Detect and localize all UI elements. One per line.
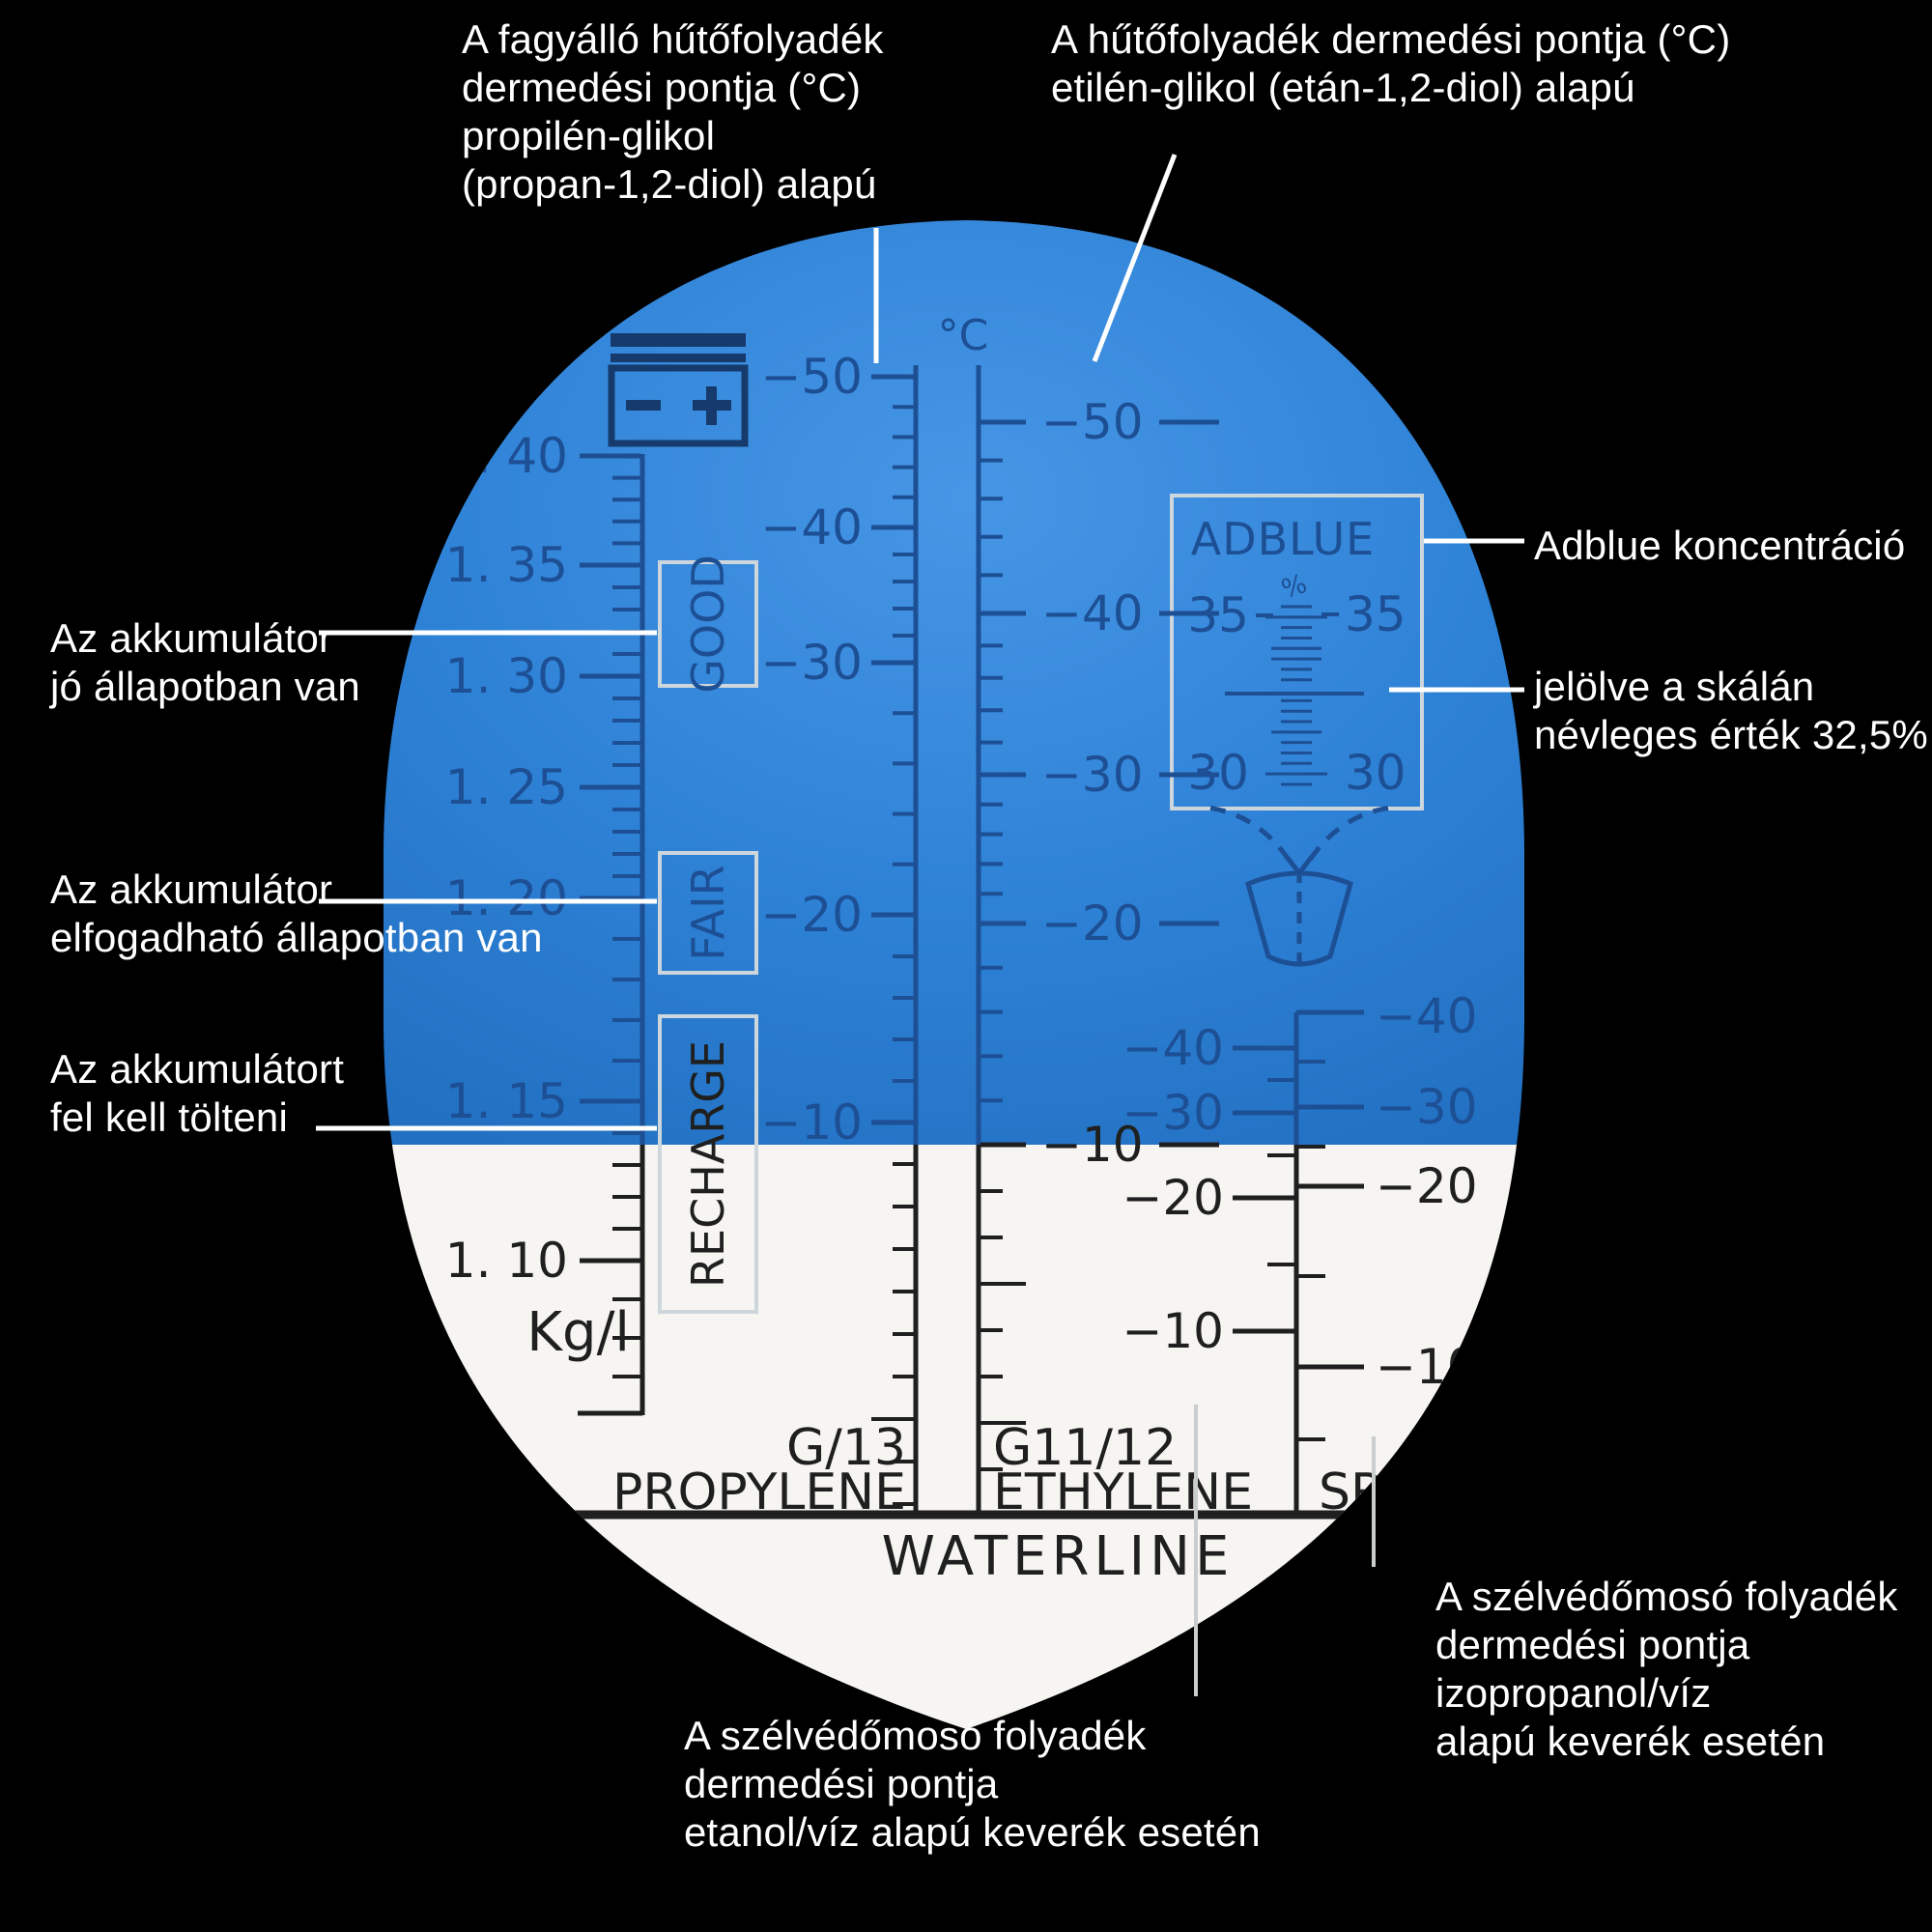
annotation-line: jó állapotban van: [50, 663, 360, 711]
propylene-scale-label: −40: [760, 499, 863, 555]
propylene-scale-label: −50: [760, 349, 863, 405]
annotation-adblue-concentration: Adblue koncentráció: [1534, 522, 1905, 570]
battery-status-label-fair: FAIR: [682, 865, 734, 960]
battery-terminal-bar2: [611, 354, 746, 362]
annotation-line: etanol/víz alapú keverék esetén: [684, 1808, 1261, 1857]
annotation-battery-recharge: Az akkumulátortfel kell tölteni: [50, 1045, 344, 1142]
annotation-ethylene-freezing-point: A hűtőfolyadék dermedési pontja (°C)etil…: [1051, 15, 1730, 112]
annotation-line: Az akkumulátor: [50, 614, 360, 663]
battery-status-label-good: GOOD: [682, 554, 734, 693]
annotation-line: alapú keverék esetén: [1435, 1718, 1898, 1766]
battery-scale-label: 1. 15: [445, 1073, 568, 1129]
adblue-left-label: 35: [1187, 587, 1249, 643]
annotation-line: elfogadható állapotban van: [50, 914, 543, 962]
annotation-propylene-freezing-point: A fagyálló hűtőfolyadékdermedési pontja …: [462, 15, 884, 209]
battery-plus-icon-vertical: [706, 386, 717, 425]
srfi-right-label: −20: [1376, 1158, 1478, 1214]
srfi-left-label: −10: [1122, 1303, 1224, 1359]
screenshot-root: °C Kg/l G/13 PROPYLENE G11/12 ETHYLENE S…: [0, 0, 1932, 1932]
battery-minus-icon: [626, 400, 661, 411]
annotation-line: jelölve a skálán: [1534, 663, 1928, 711]
srfi-right-label: −30: [1376, 1079, 1478, 1135]
battery-scale-label: 1. 25: [445, 759, 568, 815]
battery-status-label-recharge: RECHARGE: [682, 1040, 734, 1288]
annotation-line: A fagyálló hűtőfolyadék: [462, 15, 884, 64]
annotation-line: A szélvédőmosó folyadék: [684, 1712, 1261, 1760]
annotation-washer-isopropanol: A szélvédőmosó folyadékdermedési pontjai…: [1435, 1573, 1898, 1766]
annotation-line: izopropanol/víz: [1435, 1669, 1898, 1718]
srfi-right-label: −10: [1376, 1339, 1478, 1395]
annotation-line: A hűtőfolyadék dermedési pontja (°C): [1051, 15, 1730, 64]
ethylene-scale-label: −50: [1041, 394, 1144, 450]
adblue-right-label: 30: [1345, 745, 1406, 801]
battery-scale-label: 1. 35: [445, 537, 568, 593]
srfi-right-label: −40: [1376, 988, 1478, 1044]
reticle-view-field: °C Kg/l G/13 PROPYLENE G11/12 ETHYLENE S…: [328, 193, 1604, 1744]
annotation-battery-fair: Az akkumulátorelfogadható állapotban van: [50, 866, 543, 962]
battery-scale-label: 1. 30: [445, 648, 568, 704]
annotation-line: dermedési pontja (°C): [462, 64, 884, 112]
battery-unit-label: Kg/l: [526, 1301, 630, 1364]
annotation-line: A szélvédőmosó folyadék: [1435, 1573, 1898, 1621]
annotation-line: Adblue koncentráció: [1534, 522, 1905, 570]
propylene-scale-label: −20: [760, 887, 863, 943]
celsius-unit-label: °C: [938, 311, 989, 360]
annotation-line: propilén-glikol: [462, 112, 884, 160]
annotation-adblue-nominal-value: jelölve a skálánnévleges érték 32,5%: [1534, 663, 1928, 759]
srfi-left-label: −20: [1122, 1170, 1224, 1226]
annotation-battery-good: Az akkumulátorjó állapotban van: [50, 614, 360, 711]
ethylene-scale-label: −30: [1041, 747, 1144, 803]
annotation-line: (propan-1,2-diol) alapú: [462, 160, 884, 209]
battery-scale-label: 1. 10: [445, 1233, 568, 1289]
annotation-line: Az akkumulátort: [50, 1045, 344, 1094]
adblue-left-label: 30: [1187, 745, 1249, 801]
ethylene-scale-label: −40: [1041, 585, 1144, 641]
annotation-line: dermedési pontja: [684, 1760, 1261, 1808]
propylene-scale-label: −10: [760, 1094, 863, 1151]
annotation-line: névleges érték 32,5%: [1534, 711, 1928, 759]
annotation-line: etilén-glikol (etán-1,2-diol) alapú: [1051, 64, 1730, 112]
waterline-label: WATERLINE: [882, 1525, 1235, 1588]
annotation-washer-ethanol: A szélvédőmosó folyadékdermedési pontjae…: [684, 1712, 1261, 1857]
propylene-scale-label: −30: [760, 635, 863, 691]
srfi-left-label: −30: [1122, 1085, 1224, 1141]
battery-terminal-bar: [611, 333, 746, 347]
annotation-line: fel kell tölteni: [50, 1094, 344, 1142]
ethylene-scale-label: −20: [1041, 895, 1144, 952]
adblue-right-label: 35: [1345, 586, 1406, 642]
srfi-left-label: −40: [1122, 1020, 1224, 1076]
battery-scale-label: 1. 40: [445, 428, 568, 484]
adblue-title: ADBLUE: [1191, 513, 1376, 565]
annotation-line: dermedési pontja: [1435, 1621, 1898, 1669]
annotation-line: Az akkumulátor: [50, 866, 543, 914]
